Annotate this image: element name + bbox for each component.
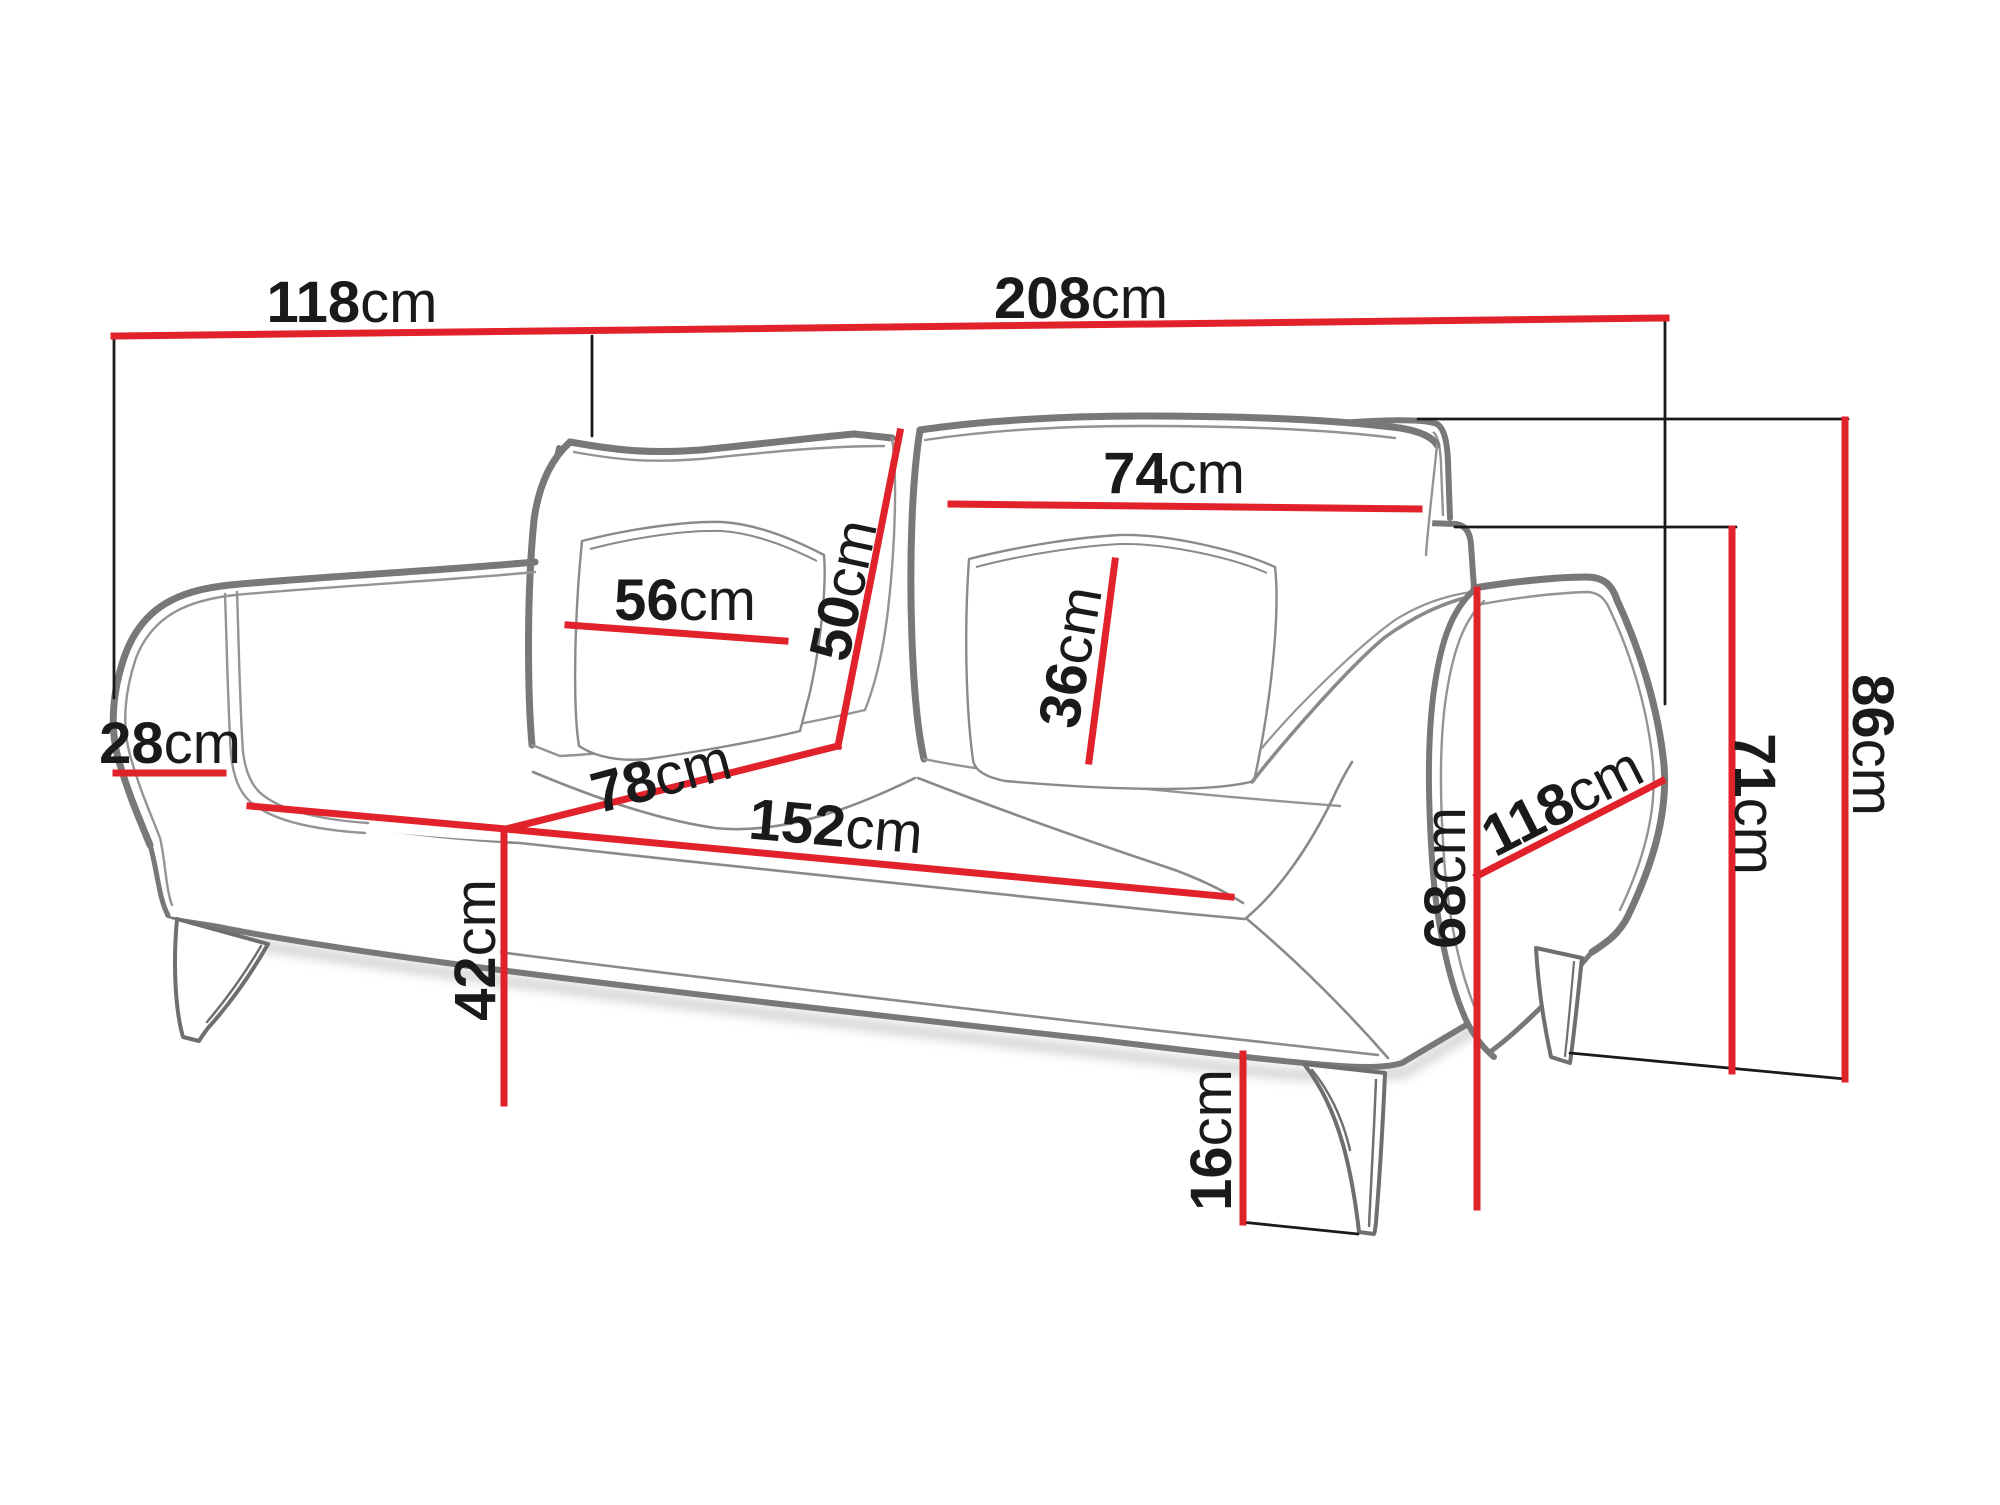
svg-text:68cm: 68cm [1413, 807, 1478, 949]
svg-text:42cm: 42cm [443, 879, 508, 1021]
svg-text:28cm: 28cm [99, 711, 241, 776]
svg-text:71cm: 71cm [1722, 733, 1787, 875]
svg-text:16cm: 16cm [1179, 1069, 1244, 1211]
svg-text:208cm: 208cm [994, 266, 1168, 331]
svg-text:56cm: 56cm [614, 568, 756, 633]
svg-text:74cm: 74cm [1103, 441, 1245, 506]
svg-text:86cm: 86cm [1840, 674, 1905, 816]
svg-text:118cm: 118cm [267, 270, 438, 335]
